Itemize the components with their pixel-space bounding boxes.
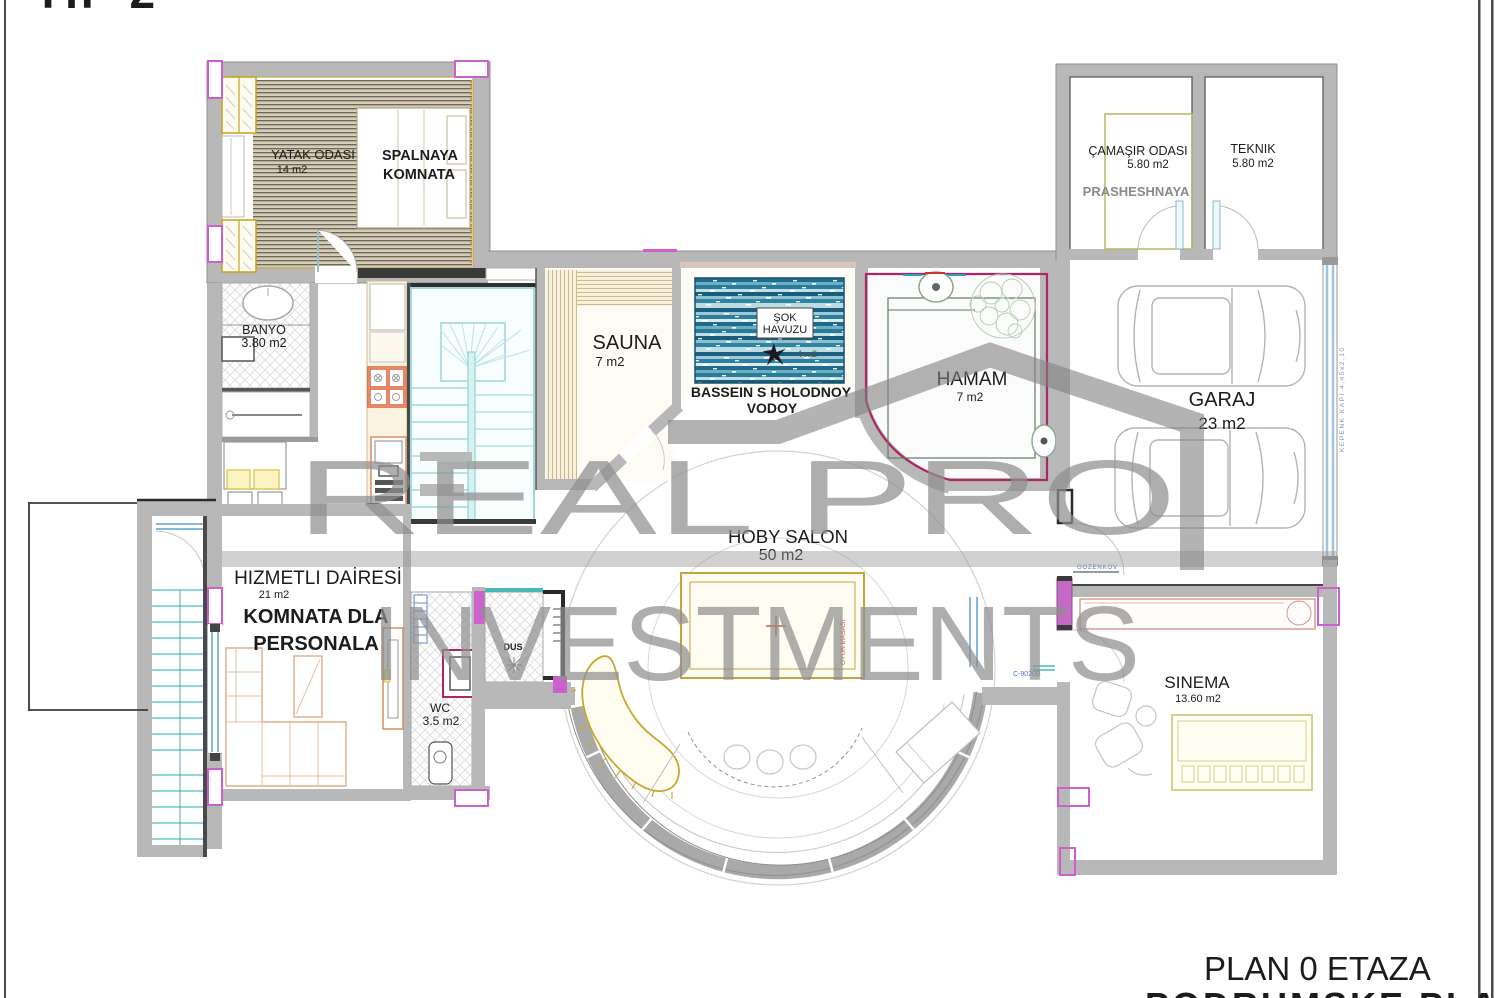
svg-text:INVESTMENTS: INVESTMENTS [371,585,1140,703]
svg-text:21 m2: 21 m2 [259,589,290,601]
svg-text:5.80 m2: 5.80 m2 [1127,159,1169,171]
svg-text:14 m2: 14 m2 [277,164,308,176]
svg-text:BANYO: BANYO [242,323,286,337]
svg-text:TIP 2: TIP 2 [34,0,158,18]
svg-text:13.60 m2: 13.60 m2 [1175,693,1221,705]
svg-text:YATAK ODASI: YATAK ODASI [271,147,355,162]
svg-text:KEPENK KAPI 4,45x2,10: KEPENK KAPI 4,45x2,10 [1339,348,1346,452]
svg-text:PODRUMSKE PLANI: PODRUMSKE PLANI [1145,985,1500,998]
svg-text:PLAN 0 ETAZA: PLAN 0 ETAZA [1204,950,1431,987]
svg-text:7 m2: 7 m2 [596,354,625,369]
svg-text:7 m2: 7 m2 [957,390,984,404]
svg-text:23 m2: 23 m2 [1198,414,1245,433]
svg-text:ŞOK: ŞOK [773,312,797,324]
svg-text:4 m2: 4 m2 [797,349,817,359]
svg-text:TEKNIK: TEKNIK [1230,142,1276,156]
svg-text:KOMNATA DLA: KOMNATA DLA [243,606,388,628]
svg-text:BASSEIN S HOLODNOY: BASSEIN S HOLODNOY [691,384,852,400]
svg-text:PERSONALA: PERSONALA [253,633,379,655]
svg-text:REAL PRO: REAL PRO [296,439,1177,557]
svg-text:WC: WC [430,701,450,715]
svg-text:5.80 m2: 5.80 m2 [1232,158,1274,170]
svg-text:3.80 m2: 3.80 m2 [241,336,286,350]
svg-text:KOMNATA: KOMNATA [383,167,455,183]
svg-text:SPALNAYA: SPALNAYA [382,148,459,164]
svg-text:3.5 m2: 3.5 m2 [423,714,460,728]
svg-text:HAVUZU: HAVUZU [763,324,807,336]
svg-text:GARAJ: GARAJ [1189,389,1256,411]
svg-text:PRASHESHNAYA: PRASHESHNAYA [1083,184,1190,199]
svg-text:SINEMA: SINEMA [1164,673,1230,692]
svg-text:SAUNA: SAUNA [593,332,663,354]
svg-text:VODOY: VODOY [747,400,798,416]
svg-text:ÇAMAŞIR ODASI: ÇAMAŞIR ODASI [1088,144,1187,158]
